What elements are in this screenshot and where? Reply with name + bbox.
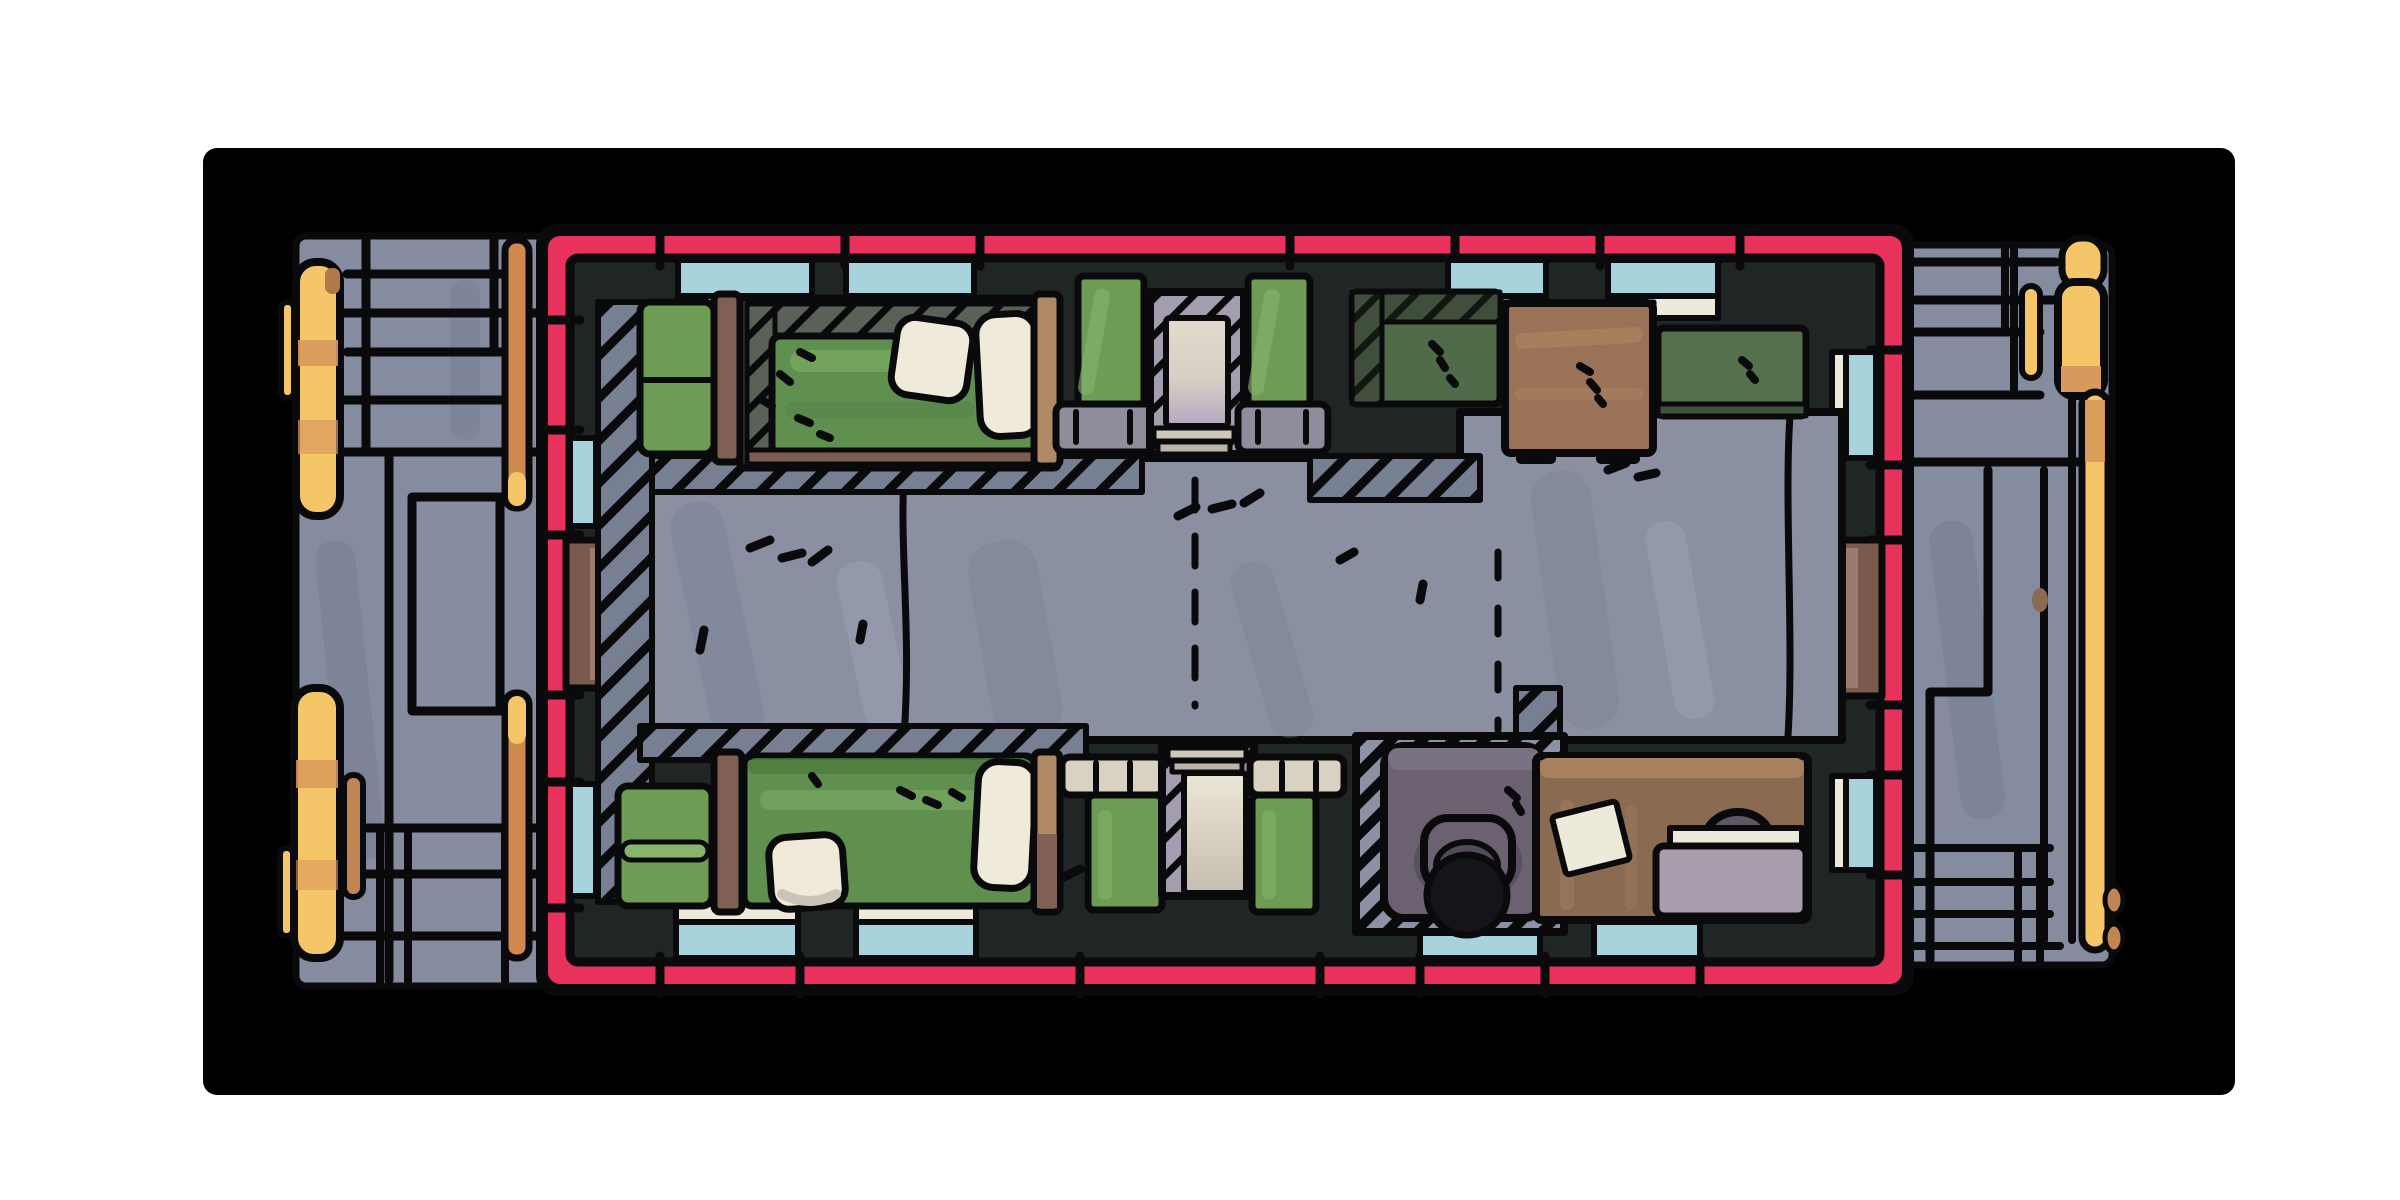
gas-cylinder-bottom-left <box>294 688 340 958</box>
handrail-pole-right <box>2022 286 2040 378</box>
seat-bottom-left-streak <box>1098 810 1112 900</box>
gas-cylinder-right-top-shade <box>2061 366 2101 392</box>
bed-top-pillow <box>889 315 975 403</box>
armchair-bottom-left-cushion <box>622 842 708 860</box>
gas-cylinder-small-bottom-left <box>344 775 363 897</box>
bed-bottom-post-right-shade <box>1037 834 1057 908</box>
seat-bottom-right-streak <box>1262 810 1276 900</box>
window-top-1-glass <box>678 260 812 298</box>
gas-cylinder-right-long <box>2082 392 2108 950</box>
handrail-pole-top-left-tip <box>508 472 526 506</box>
luggage-table-edge <box>1540 758 1804 778</box>
side-table-foot <box>1516 452 1556 464</box>
window-right-bottom-glass <box>1846 776 1876 870</box>
seat-bottom-right <box>1252 795 1316 912</box>
cabin-table-top-surface <box>1166 318 1228 426</box>
window-bottom-1-glass <box>676 922 798 958</box>
paper-sheet <box>1552 801 1631 875</box>
bed-bottom-post-left <box>714 752 742 912</box>
window-right-top-glass <box>1846 352 1876 458</box>
right-platform-knob <box>2105 886 2123 914</box>
gas-cylinder-top-left-shade <box>298 340 338 366</box>
bed-top-post-left <box>714 294 740 462</box>
floor-plank-line <box>903 462 907 736</box>
hatch-strip-top-right <box>1310 456 1480 500</box>
highback-seat-right-armrest <box>1238 404 1328 452</box>
window-bottom-2-glass <box>856 922 976 958</box>
seat-bottom-left-armrest <box>1062 757 1164 795</box>
bed-bottom-pillow <box>973 761 1038 890</box>
right-platform-knob <box>2105 924 2123 952</box>
battlemap-svg <box>0 0 2400 1200</box>
cabin-table-bottom-step <box>1168 748 1246 760</box>
door-right-panel <box>1844 548 1858 688</box>
window-top-4-glass <box>1608 260 1718 298</box>
suitcase-body <box>1656 846 1806 916</box>
right-platform-dot <box>2032 588 2048 612</box>
desk-top-band <box>1388 748 1540 770</box>
cabin-table-top-step <box>1158 442 1230 454</box>
storage-chest-hatch-side <box>1352 292 1382 404</box>
gas-cylinder-bottom-left-shade <box>296 760 338 788</box>
seat-bottom-right-armrest <box>1250 757 1344 795</box>
bench-top-right-rail <box>1658 404 1806 416</box>
floor-plank-line <box>1788 416 1790 736</box>
handrail-pole-top-left <box>505 240 529 508</box>
gas-cylinder-top-left <box>296 262 340 516</box>
bed-top-mattress-shade <box>785 402 975 418</box>
gas-cylinder-right-long-shade <box>2085 400 2105 462</box>
side-table-foot <box>1596 452 1640 464</box>
window-top-2-glass <box>846 260 974 298</box>
side-table-top-streak <box>1515 388 1643 400</box>
handrail-pole-bottom-left-tip <box>508 696 526 744</box>
left-platform-streak <box>450 280 480 440</box>
cabin-table-top-step <box>1154 428 1234 441</box>
map-shapes <box>203 148 2235 1095</box>
window-bottom-4-glass <box>1594 922 1700 958</box>
desk-chair-seat <box>1427 855 1507 935</box>
gas-cylinder-sliver-bottom-left <box>280 848 293 936</box>
side-table-top <box>1505 303 1653 453</box>
gas-cylinder-bottom-left-shade <box>296 860 338 890</box>
gas-cylinder-top-left-shade <box>298 420 338 454</box>
highback-seat-left-armrest <box>1056 404 1154 452</box>
battlemap-page <box>0 0 2400 1200</box>
bed-top-rail <box>747 450 1051 464</box>
gas-cylinder-top-left-knob <box>325 268 340 294</box>
cabin-table-bottom-surface <box>1184 773 1246 893</box>
